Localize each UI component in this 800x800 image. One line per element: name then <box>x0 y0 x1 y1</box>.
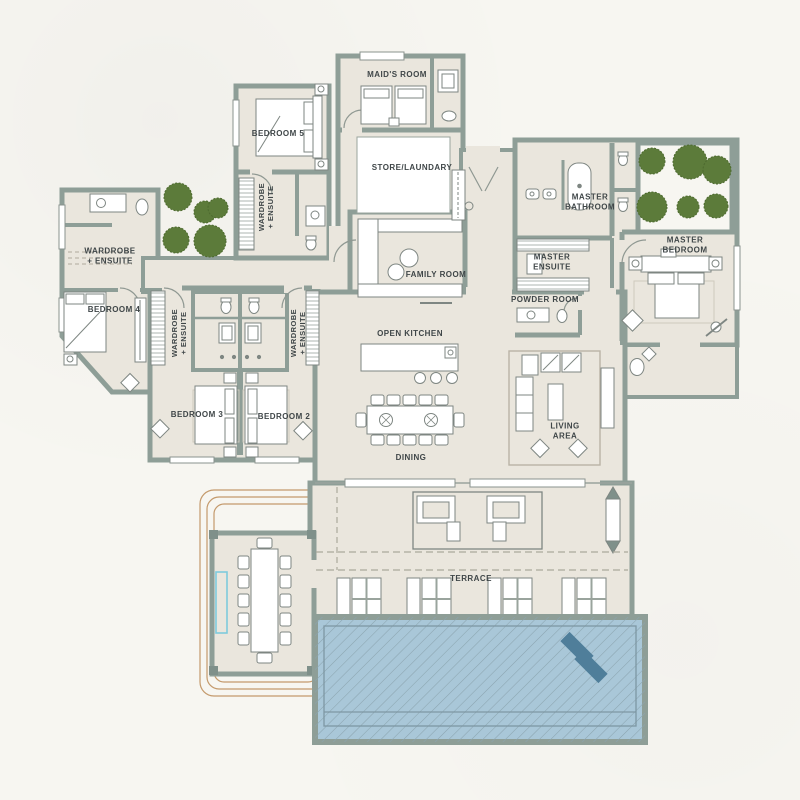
pool <box>315 617 645 742</box>
terrace-ornament <box>606 487 620 553</box>
floor-plan-drawing <box>0 0 800 800</box>
powder-room-fixtures <box>517 308 567 323</box>
floor-plan-canvas: MAID'S ROOM BEDROOM 5 STORE/LAUNDARY WAR… <box>0 0 800 800</box>
dining-table <box>356 395 464 445</box>
room-vestibule <box>461 150 517 292</box>
store-area <box>357 137 450 213</box>
trees-left-courtyard <box>163 183 228 257</box>
